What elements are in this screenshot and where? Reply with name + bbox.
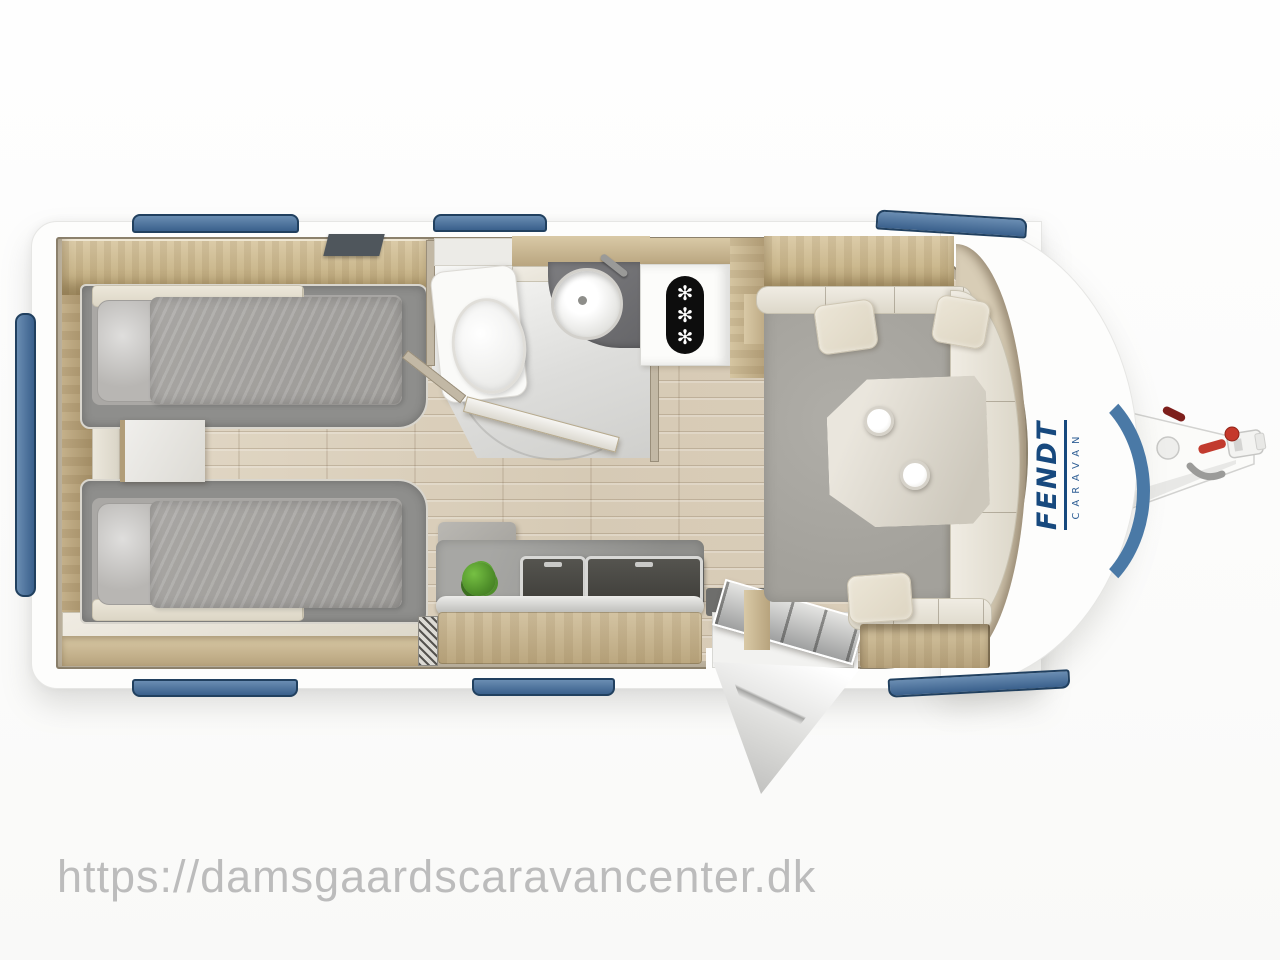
caravan-floorplan-image: ✻ ✻ ✻ FENDT CARAVAN https://damsgaardsca… [0,0,1280,960]
dinette-pillow [813,298,879,356]
bedside-table [120,420,205,482]
fridge-overhead-cabinet [640,238,730,266]
washbasin-drain [578,296,587,305]
concertina-divider [418,616,438,666]
fendt-logo-text: FENDT [1032,420,1067,530]
overhead-cabinet-dinette [764,236,954,292]
dinette-bench-wood [860,624,990,668]
freezer-badge: ✻ ✻ ✻ [666,276,704,354]
lid-handle [635,562,653,567]
dinette-pillow [930,294,992,351]
bathroom-cabinet-white [434,238,514,266]
cup [900,460,930,490]
kitchen-drawer-front [438,612,702,664]
roof-window-mid-top [433,214,547,232]
roof-window-rear-top [132,214,299,233]
coupling-knob [1225,427,1239,441]
single-bed-top-duvet [150,297,402,404]
roof-window-mid-bottom [472,678,615,696]
bedroom-bench-wood [62,636,428,666]
snowflake-icon: ✻ [677,305,694,325]
tv-screen [323,234,384,256]
washbasin [551,268,623,340]
snowflake-icon: ✻ [677,327,694,347]
rear-window [15,313,36,597]
lid-handle [544,562,562,567]
fendt-logo: FENDT CARAVAN [982,400,1132,550]
cup [864,406,894,436]
watermark-url: https://damsgaardscaravancenter.dk [57,851,816,903]
roof-window-rear-bottom [132,679,298,697]
snowflake-icon: ✻ [677,283,694,303]
dinette-pillow [846,572,913,624]
single-bed-bottom-duvet [150,501,402,608]
crank-handle [1161,405,1186,423]
jockey-wheel-mount [1157,437,1179,459]
caravan-logo-text: CARAVAN [1071,430,1082,519]
plant [462,562,496,596]
